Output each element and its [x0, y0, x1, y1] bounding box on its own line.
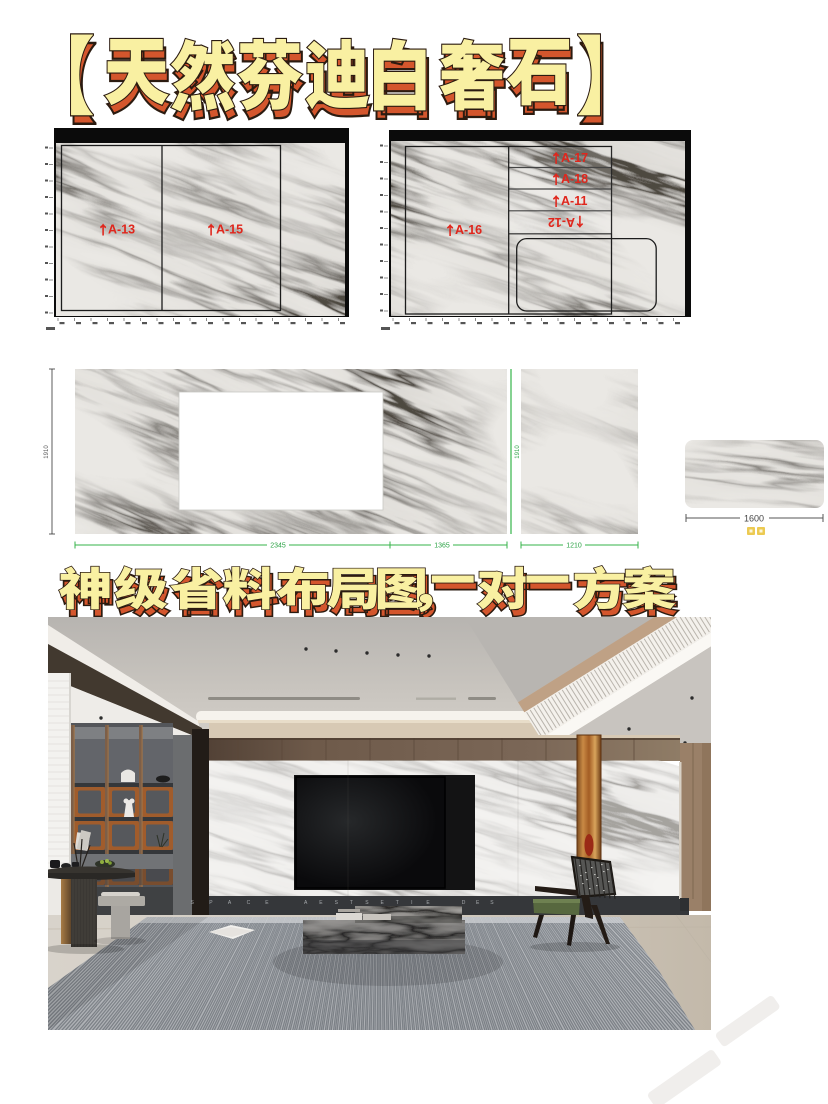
svg-text:A-15: A-15 — [216, 223, 243, 237]
svg-text:A-11: A-11 — [561, 194, 587, 208]
svg-text:1365: 1365 — [434, 543, 450, 550]
svg-text:1210: 1210 — [566, 543, 582, 550]
svg-text:A-16: A-16 — [455, 223, 482, 237]
svg-text:T: T — [396, 900, 399, 906]
svg-text:A-18: A-18 — [561, 172, 588, 186]
svg-text:I: I — [411, 900, 412, 906]
svg-text:A-17: A-17 — [561, 151, 588, 165]
svg-text:D: D — [462, 900, 466, 906]
svg-text:1910: 1910 — [515, 445, 521, 459]
svg-text:1600: 1600 — [744, 514, 764, 524]
svg-text:C: C — [247, 900, 251, 906]
svg-text:T: T — [350, 900, 353, 906]
svg-text:A-13: A-13 — [108, 223, 135, 237]
svg-text:1910: 1910 — [44, 445, 50, 459]
svg-text:A-12: A-12 — [548, 215, 575, 229]
svg-text:2345: 2345 — [270, 543, 286, 550]
